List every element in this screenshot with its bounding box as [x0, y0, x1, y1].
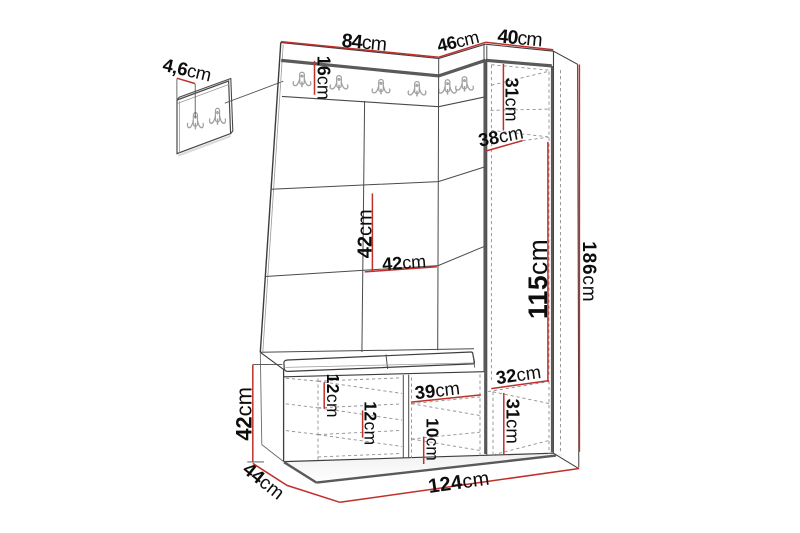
svg-text:42cm: 42cm	[231, 387, 256, 441]
svg-text:31cm: 31cm	[502, 78, 522, 122]
svg-text:42cm: 42cm	[381, 251, 426, 274]
svg-text:186cm: 186cm	[578, 241, 599, 302]
svg-text:40cm: 40cm	[497, 25, 543, 51]
svg-text:115cm: 115cm	[523, 239, 553, 319]
svg-text:16cm: 16cm	[314, 56, 334, 100]
svg-text:10cm: 10cm	[422, 418, 442, 461]
svg-text:12cm: 12cm	[361, 401, 381, 445]
svg-text:31cm: 31cm	[502, 399, 523, 444]
svg-text:42cm: 42cm	[354, 209, 376, 258]
svg-text:12cm: 12cm	[323, 374, 343, 418]
svg-text:84cm: 84cm	[341, 30, 387, 56]
